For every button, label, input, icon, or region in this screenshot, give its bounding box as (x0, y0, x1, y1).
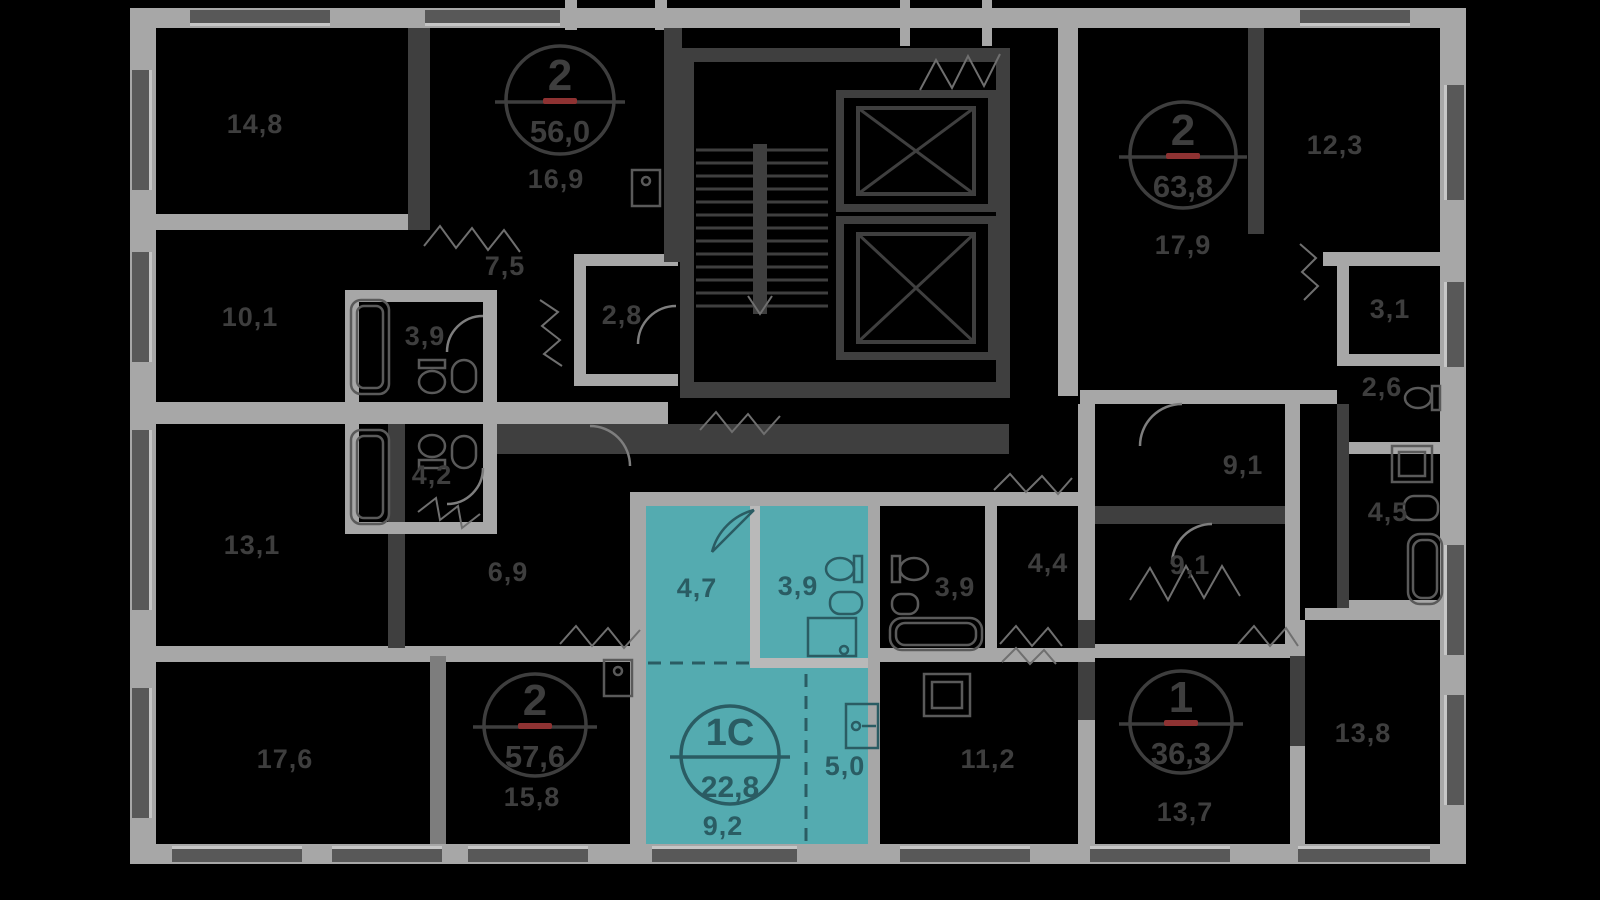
plan-geometry (1300, 23, 1410, 26)
badge-rooms-count: 2 (548, 51, 572, 100)
floor-plan-stage: 14,816,97,510,12,83,94,213,16,917,615,81… (0, 0, 1600, 900)
plan-geometry (652, 846, 797, 849)
plan-geometry (1323, 252, 1440, 266)
badge-total-area: 22,8 (701, 771, 759, 804)
room-area-label: 3,1 (1370, 294, 1411, 324)
plan-geometry (149, 688, 152, 818)
plan-geometry (149, 70, 152, 190)
plan-geometry (985, 502, 997, 662)
badge-rooms-count: 1 (1169, 673, 1193, 722)
plan-geometry (1078, 620, 1095, 720)
plan-geometry (1345, 354, 1440, 366)
room-area-label: 7,5 (485, 251, 526, 281)
room-area-label: 15,8 (504, 782, 561, 812)
plan-geometry (664, 28, 682, 262)
selected-room-area-label: 9,2 (703, 811, 744, 841)
selected-room-area-label: 4,7 (677, 573, 718, 603)
selected-room-area-label: 5,0 (825, 751, 866, 781)
room-area-label: 3,9 (405, 321, 446, 351)
room-area-label: 14,8 (227, 109, 284, 139)
plan-geometry (574, 254, 678, 266)
plan-geometry (565, 0, 577, 30)
plan-geometry (190, 23, 330, 26)
room-area-label: 4,5 (1368, 497, 1409, 527)
plan-geometry (900, 0, 910, 46)
plan-geometry (408, 28, 430, 230)
plan-geometry (497, 424, 1009, 454)
plan-geometry (1349, 442, 1440, 454)
badge-total-area: 36,3 (1151, 736, 1211, 771)
room-area-label: 6,9 (488, 557, 529, 587)
plan-geometry (1285, 390, 1300, 658)
plan-geometry (1444, 85, 1447, 200)
plan-geometry (149, 252, 152, 362)
plan-geometry (1058, 28, 1078, 396)
plan-geometry (996, 48, 1010, 396)
badge-total-area: 57,6 (505, 739, 565, 774)
room-area-label: 12,3 (1307, 130, 1364, 160)
plan-geometry (156, 402, 668, 424)
plan-geometry (332, 846, 442, 849)
plan-geometry (982, 0, 992, 46)
room-area-label: 4,2 (412, 460, 453, 490)
plan-geometry (630, 492, 1095, 506)
plan-geometry (468, 846, 588, 849)
plan-geometry (1090, 846, 1230, 849)
room-area-label: 10,1 (222, 302, 279, 332)
plan-geometry (574, 374, 678, 386)
plan-geometry (1290, 656, 1305, 746)
plan-geometry (753, 144, 767, 314)
room-area-label: 9,1 (1170, 550, 1211, 580)
badge-rooms-count: 2 (1171, 106, 1195, 155)
plan-geometry (149, 430, 152, 610)
plan-geometry (1248, 28, 1264, 234)
plan-geometry (868, 502, 880, 846)
room-area-label: 9,1 (1223, 450, 1264, 480)
plan-geometry (483, 424, 497, 532)
badge-rooms-count: 1С (706, 712, 755, 754)
plan-geometry (900, 846, 1030, 849)
bathroom-partition-wall (750, 506, 760, 668)
floor-plan: 14,816,97,510,12,83,94,213,16,917,615,81… (0, 0, 1600, 900)
plan-geometry (430, 656, 446, 844)
plan-geometry (156, 646, 630, 662)
room-area-label: 16,9 (528, 164, 585, 194)
room-area-label: 11,2 (960, 744, 1015, 774)
plan-geometry (172, 846, 302, 849)
plan-geometry (1337, 404, 1349, 614)
room-area-label: 17,9 (1155, 230, 1212, 260)
badge-rooms-count: 2 (523, 676, 547, 725)
plan-geometry (1305, 608, 1440, 620)
plan-geometry (680, 48, 694, 396)
plan-geometry (655, 0, 667, 30)
plan-geometry (1080, 506, 1285, 524)
plan-geometry (130, 8, 1466, 28)
room-area-label: 4,4 (1028, 548, 1069, 578)
plan-geometry (130, 844, 1466, 864)
room-area-label: 2,8 (602, 300, 643, 330)
badge-total-area: 56,0 (530, 114, 590, 149)
plan-geometry (156, 214, 430, 230)
plan-geometry (680, 382, 1010, 398)
room-area-label: 13,1 (224, 530, 281, 560)
selected-room-area-label: 3,9 (778, 571, 819, 601)
room-area-label: 13,7 (1157, 797, 1214, 827)
room-area-label: 3,9 (935, 572, 976, 602)
plan-geometry (574, 254, 586, 386)
plan-geometry (1337, 266, 1349, 366)
plan-geometry (680, 48, 1010, 62)
bathroom-partition-wall (750, 658, 868, 668)
plan-geometry (425, 23, 560, 26)
room-area-label: 13,8 (1335, 718, 1392, 748)
plan-geometry (1444, 282, 1447, 367)
plan-geometry (1444, 545, 1447, 655)
plan-geometry (483, 290, 497, 402)
room-area-label: 2,6 (1362, 372, 1403, 402)
plan-geometry (1298, 846, 1430, 849)
room-area-label: 17,6 (257, 744, 314, 774)
plan-geometry (388, 424, 405, 648)
badge-total-area: 63,8 (1153, 169, 1213, 204)
plan-geometry (1444, 695, 1447, 805)
plan-geometry (1093, 644, 1285, 658)
